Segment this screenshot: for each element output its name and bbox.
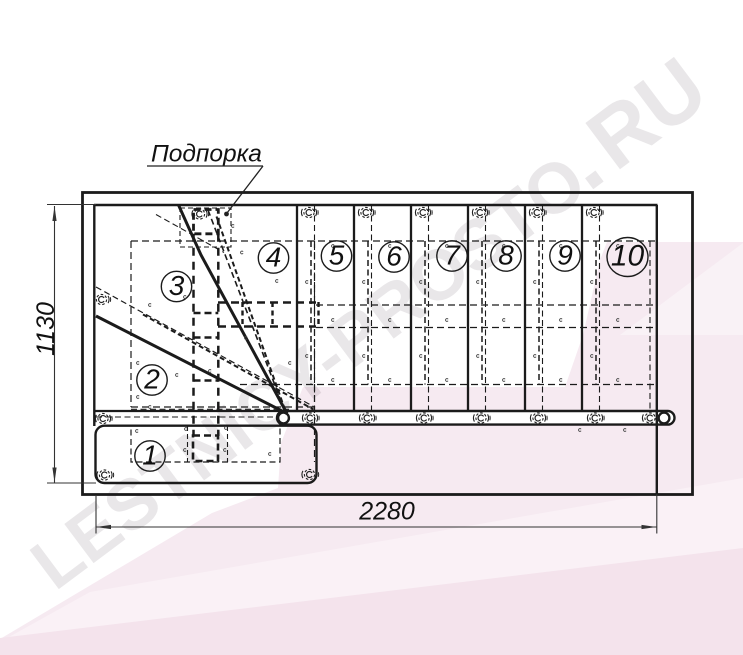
svg-text:8: 8 (498, 240, 514, 271)
svg-text:Подпорка: Подпорка (151, 141, 262, 168)
svg-text:1: 1 (142, 440, 158, 471)
svg-text:5: 5 (329, 240, 345, 271)
svg-text:6: 6 (386, 241, 402, 272)
svg-text:3: 3 (169, 270, 185, 301)
svg-text:10: 10 (611, 240, 645, 273)
svg-text:7: 7 (444, 240, 461, 271)
svg-text:2: 2 (143, 364, 160, 395)
svg-text:9: 9 (557, 240, 573, 271)
svg-text:1130: 1130 (32, 302, 60, 356)
svg-text:4: 4 (266, 242, 282, 273)
svg-text:2280: 2280 (358, 498, 415, 526)
